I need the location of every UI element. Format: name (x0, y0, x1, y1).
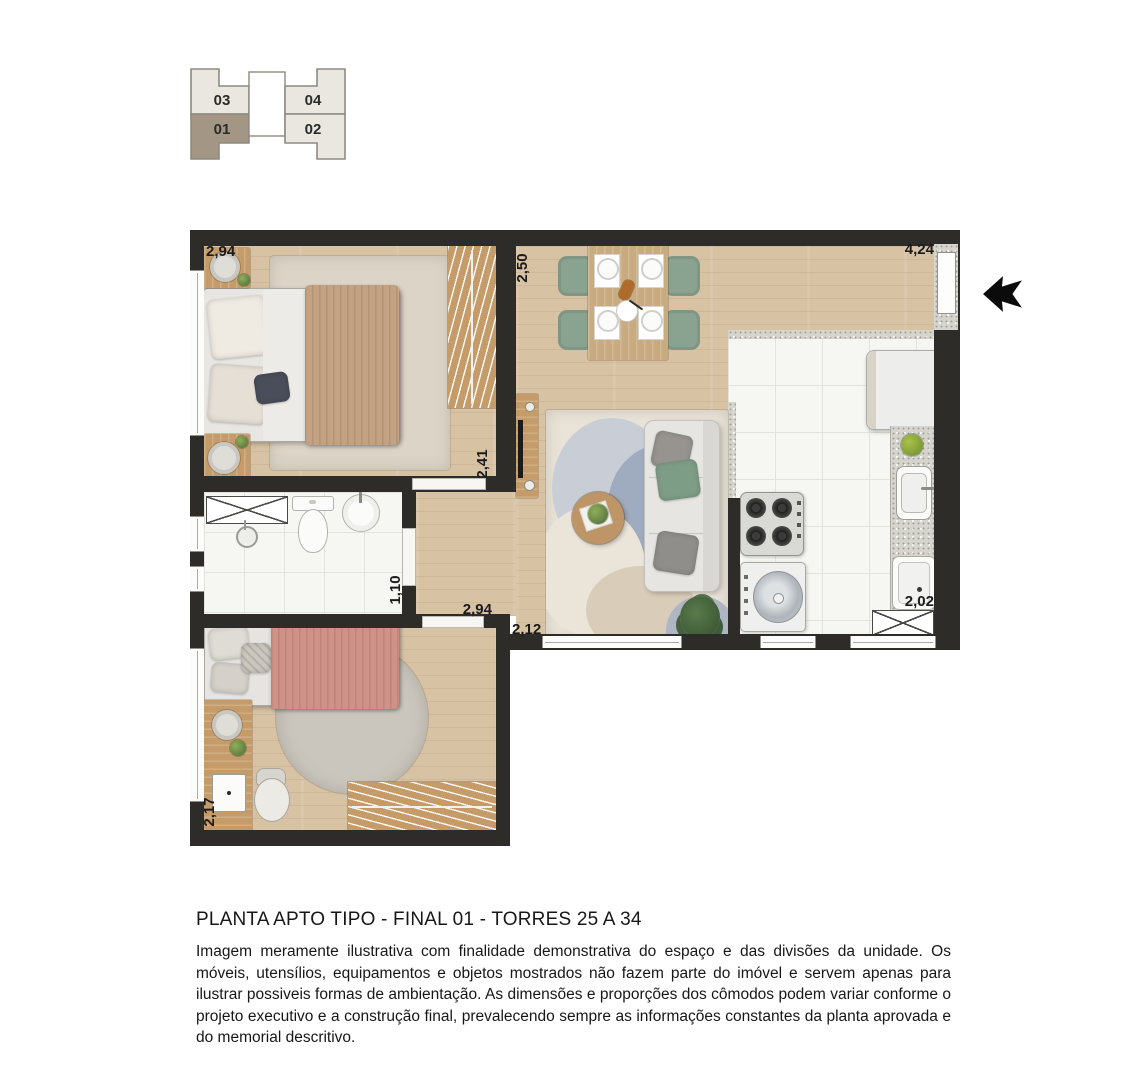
bedroom1-wardrobe (448, 246, 496, 408)
washing-machine (740, 562, 806, 632)
dining-table (588, 244, 668, 360)
floor-plan: 2,94 2,50 4,24 2,41 1,10 2,94 2,12 2,02 … (190, 230, 960, 846)
chair-seat (254, 778, 290, 822)
toilet-bowl (298, 509, 328, 553)
key-plan-label-04: 04 (305, 92, 322, 109)
fridge (866, 350, 936, 430)
desk-lamp (212, 710, 242, 740)
tv-panel (516, 394, 538, 498)
bedroom2-bed (204, 620, 398, 706)
shower-hose (244, 520, 246, 530)
key-plan-core (249, 72, 285, 136)
dim-living-width: 2,50 (515, 248, 531, 288)
counter-plant (901, 434, 923, 456)
washer-controls (744, 575, 748, 617)
dim-bedroom1-length: 2,41 (475, 444, 491, 484)
sink-basin (901, 473, 927, 513)
wall-bottom-lower (190, 830, 510, 846)
dim-kitchen-width: 2,02 (884, 594, 934, 610)
key-plan: 03 04 01 02 (189, 64, 347, 164)
entry-door (937, 252, 956, 314)
toilet-button (309, 500, 316, 504)
fridge-hinge-side (867, 351, 876, 429)
bedroom1-window (190, 270, 204, 436)
stove-controls (797, 501, 801, 545)
bed1-plant-bottom (236, 436, 248, 448)
bed1-lamp-bottom (208, 442, 240, 474)
bed2-pillow-knit (241, 643, 271, 673)
page: 03 04 01 02 (0, 0, 1145, 1080)
bathroom-vent-1 (190, 516, 204, 552)
wall-top (190, 230, 960, 246)
plan-disclaimer: Imagem meramente ilustrativa com finalid… (196, 941, 951, 1049)
toilet (292, 496, 332, 552)
sink-faucet (921, 487, 935, 490)
dim-bedroom2-length: 2,17 (202, 792, 218, 832)
bread-tray (617, 279, 635, 302)
burner-4 (772, 526, 792, 546)
bed1-pillow-dark (253, 371, 291, 405)
wall-bedroom2-right (496, 628, 510, 846)
shower-box (206, 496, 288, 524)
dining-chair-br (664, 310, 700, 350)
tv-screen (518, 420, 523, 478)
kitchen-edge-counter (728, 402, 736, 500)
bathroom-vent-2 (190, 566, 204, 592)
sofa-backrest (703, 421, 719, 591)
key-plan-label-01: 01 (214, 121, 231, 138)
stove (740, 492, 804, 556)
entrance-arrow-icon (982, 273, 1024, 315)
kitchen-window-1 (760, 636, 816, 648)
plate-tl (597, 258, 619, 280)
dim-entry-width: 4,24 (890, 242, 934, 258)
bed2-blanket (271, 617, 399, 709)
bed1-plant-top (238, 274, 250, 286)
burner-1 (746, 498, 766, 518)
washer-agitator (773, 593, 784, 604)
bed1-blanket (305, 285, 399, 445)
coffee-table (572, 492, 624, 544)
plan-title: PLANTA APTO TIPO - FINAL 01 - TORRES 25 … (196, 908, 642, 932)
key-plan-label-02: 02 (305, 121, 322, 138)
key-plan-label-03: 03 (214, 92, 231, 109)
kitchen-sink (896, 466, 932, 520)
burner-2 (746, 526, 766, 546)
bed1-pillow-1 (206, 294, 270, 360)
tv-speaker-top (525, 402, 535, 412)
desk-plant (230, 740, 246, 756)
dim-bathroom-width: 1,10 (388, 570, 404, 610)
kitchen-window-2 (850, 636, 936, 648)
shower-head (236, 526, 258, 548)
kitchen-cabinet (872, 610, 934, 636)
tv-speaker-bottom (524, 480, 535, 491)
wall-bedroom1-living (496, 230, 516, 492)
floor-plant (680, 596, 720, 638)
hall-floor (416, 492, 516, 616)
tub-drain (917, 587, 922, 592)
dim-bedroom1-width: 2,94 (206, 244, 235, 260)
burner-3 (772, 498, 792, 518)
laptop-dot (227, 791, 231, 795)
bathroom-door (402, 528, 416, 586)
sofa (644, 420, 720, 592)
coffee-table-plant (588, 504, 608, 524)
bedroom2-wardrobe (348, 782, 496, 832)
living-window (542, 636, 682, 648)
desk-chair (254, 768, 288, 822)
kitchen-pass-counter (728, 330, 934, 339)
wall-living-kitchen (728, 498, 740, 636)
plate-tr (641, 258, 663, 280)
bathroom-sink (342, 494, 380, 532)
dining-chair-tr (664, 256, 700, 296)
dim-bedroom2-width: 2,94 (448, 602, 492, 618)
sofa-pillow-green (655, 458, 702, 501)
sofa-pillow-gray2 (652, 530, 700, 576)
bedroom1-bed (202, 288, 400, 442)
bedroom2-window (190, 648, 204, 802)
plate-br (641, 310, 663, 332)
bed1-sheet (263, 289, 311, 441)
dim-hall-width: 2,12 (512, 622, 541, 638)
bath-faucet (359, 491, 362, 503)
